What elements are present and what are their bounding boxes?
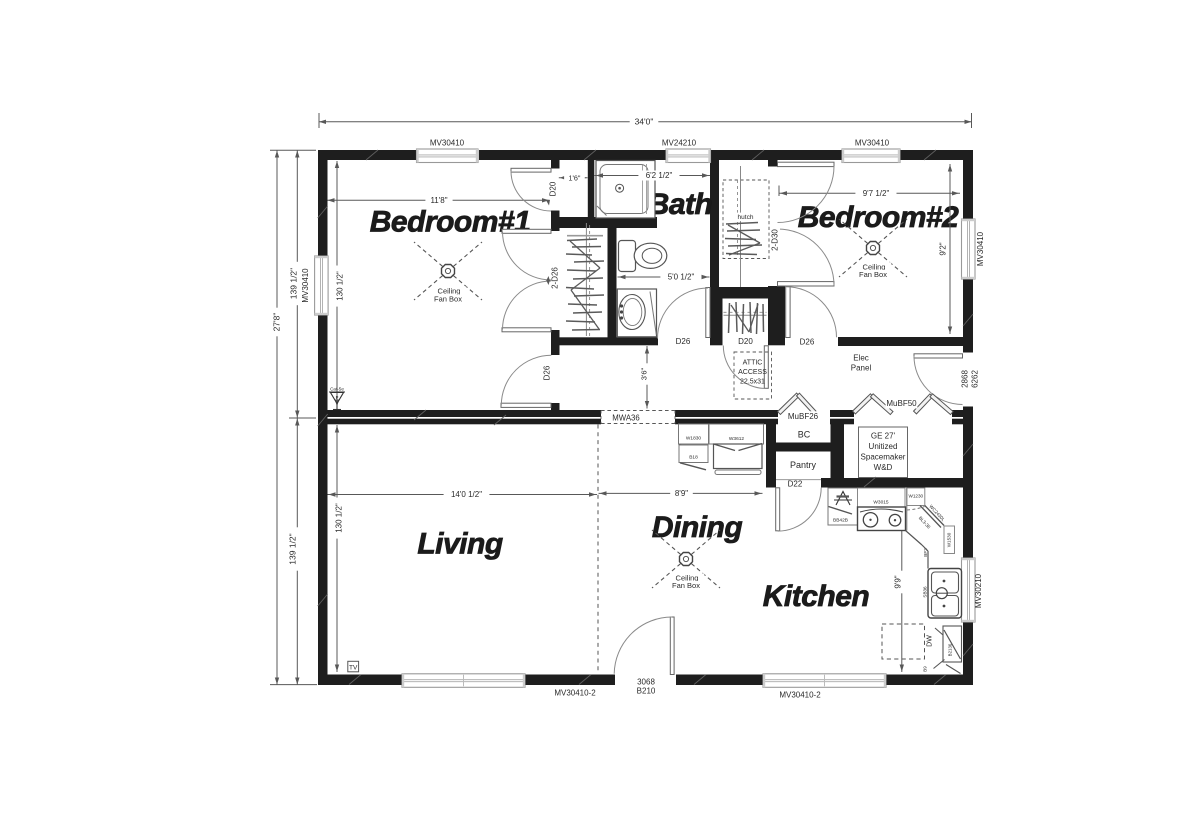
svg-text:Spacemaker: Spacemaker	[861, 453, 906, 462]
svg-text:D22: D22	[788, 480, 803, 489]
svg-text:9'7 1/2": 9'7 1/2"	[863, 189, 890, 198]
svg-text:34'0": 34'0"	[635, 117, 654, 127]
svg-text:27'8": 27'8"	[272, 313, 282, 332]
svg-text:1'6": 1'6"	[569, 173, 581, 182]
svg-text:9'2": 9'2"	[939, 242, 948, 255]
svg-text:2-D30: 2-D30	[771, 229, 780, 251]
svg-text:Panel: Panel	[851, 364, 872, 373]
svg-text:Dining: Dining	[652, 511, 742, 544]
svg-text:MWA36: MWA36	[612, 414, 639, 423]
svg-text:MV30410: MV30410	[301, 268, 310, 303]
svg-text:MV24210: MV24210	[662, 139, 697, 148]
svg-text:W&D: W&D	[874, 463, 893, 472]
svg-text:W3015: W3015	[873, 500, 889, 506]
svg-text:Pantry: Pantry	[790, 460, 817, 470]
svg-text:Living: Living	[417, 528, 503, 561]
svg-text:130 1/2": 130 1/2"	[336, 271, 345, 301]
svg-text:3'6": 3'6"	[640, 367, 649, 380]
svg-text:GE 27': GE 27'	[871, 432, 896, 441]
svg-text:Bedroom#2: Bedroom#2	[798, 201, 959, 234]
svg-text:W1230: W1230	[909, 494, 924, 499]
svg-text:130 1/2": 130 1/2"	[335, 503, 344, 533]
svg-text:11'8": 11'8"	[430, 196, 447, 205]
svg-text:P: P	[336, 395, 339, 400]
svg-text:Bath: Bath	[648, 188, 713, 221]
svg-text:MuBF26: MuBF26	[788, 412, 819, 421]
svg-text:SB36: SB36	[923, 586, 928, 598]
svg-text:D26: D26	[800, 337, 815, 346]
svg-text:6'2 1/2": 6'2 1/2"	[646, 171, 673, 180]
svg-text:139 1/2": 139 1/2"	[289, 268, 299, 299]
svg-text:DW: DW	[927, 635, 934, 647]
svg-text:B18: B18	[689, 455, 698, 461]
svg-text:Fan Box: Fan Box	[859, 270, 887, 279]
svg-text:W1830: W1830	[686, 436, 702, 442]
svg-text:MV30410: MV30410	[976, 231, 985, 266]
svg-text:MV30210: MV30210	[974, 573, 983, 608]
svg-text:MV30410-2: MV30410-2	[554, 689, 596, 698]
svg-text:9'9": 9'9"	[894, 575, 903, 588]
svg-text:22.5x31: 22.5x31	[740, 379, 765, 386]
svg-text:W1530: W1530	[947, 532, 952, 547]
svg-text:2-D26: 2-D26	[551, 267, 560, 289]
svg-text:14'0 1/2": 14'0 1/2"	[451, 490, 482, 499]
svg-text:D20: D20	[738, 337, 753, 346]
svg-text:Fan Box: Fan Box	[672, 581, 700, 590]
svg-text:Fan Box: Fan Box	[434, 295, 462, 304]
svg-text:MV30410: MV30410	[855, 139, 890, 148]
svg-text:3068: 3068	[637, 677, 655, 686]
svg-text:BB42B: BB42B	[833, 518, 848, 524]
svg-text:5'0 1/2": 5'0 1/2"	[668, 273, 695, 282]
svg-text:Cat-5e: Cat-5e	[330, 387, 344, 392]
svg-text:2868: 2868	[961, 370, 970, 388]
svg-text:8'9": 8'9"	[675, 489, 688, 498]
svg-text:D20: D20	[549, 181, 558, 196]
svg-text:TV: TV	[349, 664, 358, 671]
svg-text:MuBF50: MuBF50	[886, 399, 917, 408]
svg-text:B9: B9	[923, 666, 928, 672]
svg-text:B2136: B2136	[948, 643, 953, 656]
svg-text:D26: D26	[543, 365, 552, 380]
svg-text:6262: 6262	[971, 370, 980, 388]
svg-text:MV30410: MV30410	[430, 139, 465, 148]
svg-text:Elec: Elec	[853, 354, 869, 363]
svg-text:MV30410-2: MV30410-2	[779, 691, 821, 700]
svg-text:Unitized: Unitized	[869, 442, 898, 451]
svg-text:ATTIC: ATTIC	[743, 360, 763, 367]
svg-text:BC: BC	[798, 430, 811, 440]
svg-text:D26: D26	[676, 337, 691, 346]
svg-text:hutch: hutch	[738, 214, 754, 221]
svg-text:Kitchen: Kitchen	[763, 580, 870, 613]
svg-text:W3612: W3612	[729, 436, 745, 442]
svg-text:ACCESS: ACCESS	[738, 369, 767, 376]
svg-text:B210: B210	[637, 687, 656, 696]
svg-text:139 1/2": 139 1/2"	[288, 533, 298, 564]
